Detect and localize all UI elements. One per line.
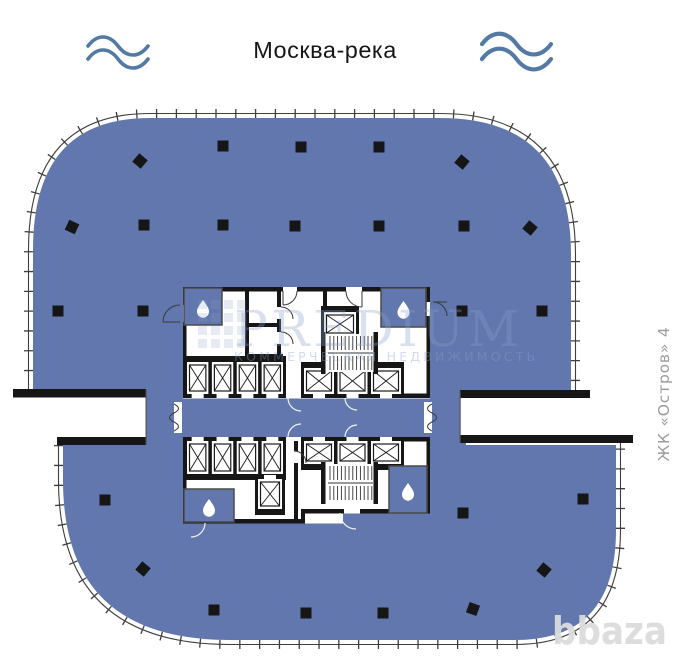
elevator-door [241, 437, 253, 441]
column [537, 306, 548, 317]
elevator-door [264, 475, 276, 479]
column [100, 495, 111, 506]
elevator-door [192, 394, 204, 398]
elevator-door [266, 394, 278, 398]
column [578, 494, 589, 505]
center-watermark: PREDIUM КОММЕРЧЕСКАЯ НЕДВИЖИМОСТЬ [198, 300, 538, 364]
elevator-door [217, 394, 229, 398]
wet-room [184, 489, 234, 522]
wave-icon-left [88, 37, 148, 68]
column [139, 220, 150, 231]
elevator-bank [184, 437, 286, 480]
project-side-label: ЖК «Остров» 4 [655, 327, 673, 462]
floor-plan-page: Москва-река [0, 0, 697, 670]
elevator-door [266, 437, 278, 441]
elevator-door [313, 437, 325, 441]
column [296, 142, 307, 153]
column [378, 608, 389, 619]
elevator-door [217, 437, 229, 441]
elevator-door [380, 394, 392, 398]
river-label: Москва-река [253, 37, 397, 63]
wet-room [389, 466, 427, 513]
column [218, 141, 229, 152]
watermark-tagline: КОММЕРЧЕСКАЯ НЕДВИЖИМОСТЬ [234, 349, 538, 364]
column [209, 605, 220, 616]
column [138, 306, 149, 317]
column [459, 221, 470, 232]
elevator-door [241, 394, 253, 398]
river-header: Москва-река [88, 34, 551, 70]
column [218, 220, 229, 231]
column [374, 221, 385, 232]
site-watermark: bbaza [552, 609, 667, 653]
column [374, 142, 385, 153]
stairwell [321, 462, 378, 504]
column [458, 508, 469, 519]
elevator-door [313, 394, 325, 398]
elevator-door [380, 437, 392, 441]
column [53, 306, 64, 317]
elevator-door [347, 437, 359, 441]
column [290, 221, 301, 232]
elevator-bank [255, 475, 285, 515]
floor-plan-svg: Москва-река [0, 0, 697, 670]
column [301, 608, 312, 619]
wave-icon-right [482, 34, 551, 70]
elevator-door [192, 437, 204, 441]
elevator-door [347, 394, 359, 398]
